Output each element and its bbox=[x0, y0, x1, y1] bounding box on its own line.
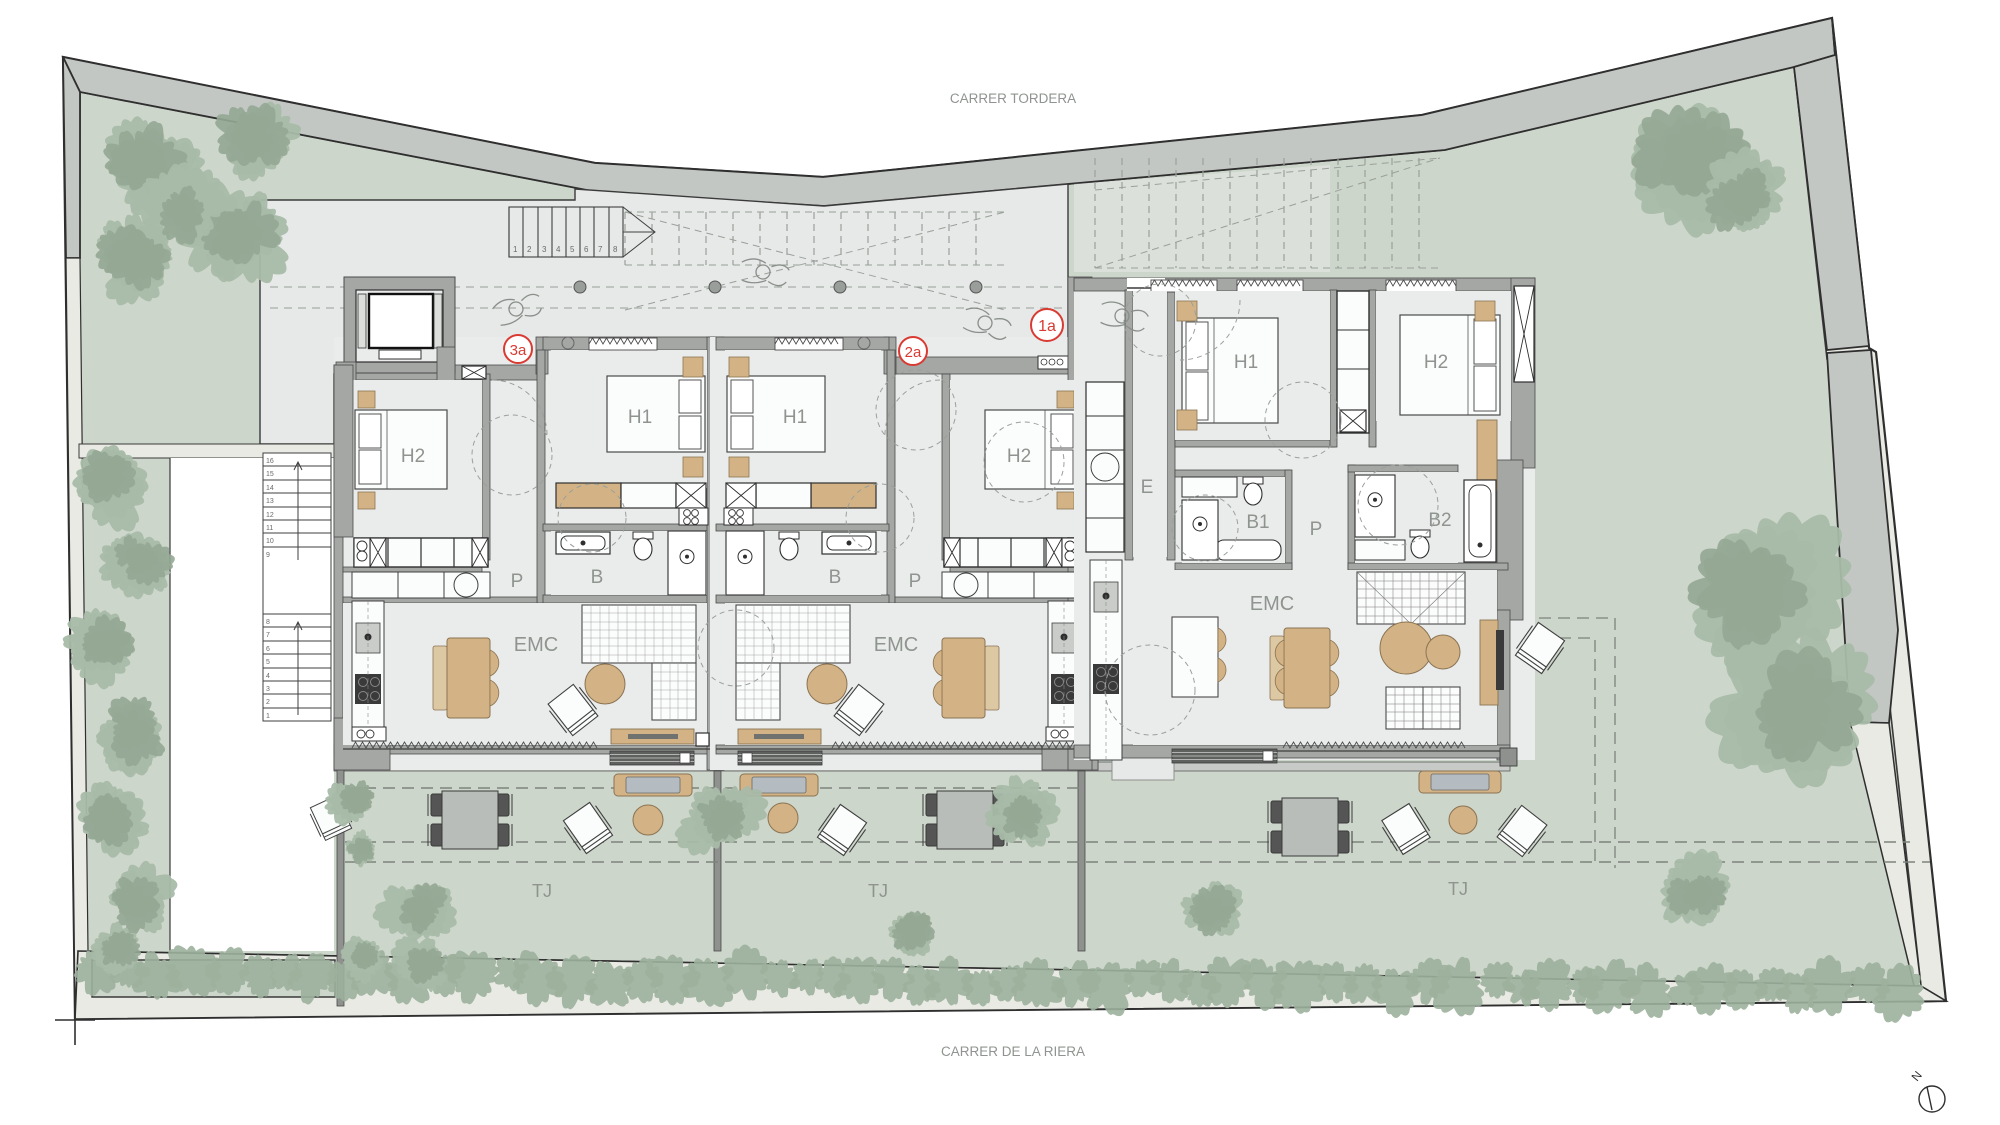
svg-text:6: 6 bbox=[266, 646, 270, 653]
svg-text:TJ: TJ bbox=[868, 881, 888, 901]
svg-text:4: 4 bbox=[556, 245, 561, 254]
svg-text:6: 6 bbox=[584, 245, 589, 254]
svg-text:EMC: EMC bbox=[514, 634, 558, 656]
svg-text:3: 3 bbox=[266, 686, 270, 693]
svg-text:EMC: EMC bbox=[874, 634, 918, 656]
svg-text:7: 7 bbox=[266, 632, 270, 639]
svg-text:1: 1 bbox=[513, 245, 518, 254]
svg-text:2: 2 bbox=[266, 699, 270, 706]
svg-text:16: 16 bbox=[266, 458, 274, 465]
svg-text:B2: B2 bbox=[1428, 510, 1451, 531]
svg-text:2: 2 bbox=[527, 245, 532, 254]
svg-text:H1: H1 bbox=[628, 407, 652, 428]
svg-text:H1: H1 bbox=[1234, 352, 1258, 373]
svg-text:TJ: TJ bbox=[532, 881, 552, 901]
svg-text:3: 3 bbox=[542, 245, 547, 254]
svg-text:5: 5 bbox=[570, 245, 575, 254]
svg-text:12: 12 bbox=[266, 512, 274, 519]
svg-text:H2: H2 bbox=[401, 446, 425, 467]
svg-text:B: B bbox=[591, 567, 604, 588]
svg-text:7: 7 bbox=[598, 245, 603, 254]
svg-text:11: 11 bbox=[266, 525, 273, 532]
svg-text:H2: H2 bbox=[1007, 446, 1031, 467]
svg-text:P: P bbox=[909, 571, 922, 592]
svg-text:H2: H2 bbox=[1424, 352, 1448, 373]
svg-text:EMC: EMC bbox=[1250, 593, 1294, 615]
svg-text:E: E bbox=[1141, 477, 1154, 498]
svg-text:TJ: TJ bbox=[1448, 879, 1468, 899]
svg-text:P: P bbox=[511, 571, 524, 592]
svg-text:15: 15 bbox=[266, 471, 274, 478]
svg-text:10: 10 bbox=[266, 538, 274, 545]
svg-text:4: 4 bbox=[266, 673, 270, 680]
svg-text:8: 8 bbox=[266, 619, 270, 626]
svg-text:P: P bbox=[1310, 519, 1323, 540]
svg-text:8: 8 bbox=[613, 245, 618, 254]
svg-text:3a: 3a bbox=[510, 342, 527, 359]
svg-text:CARRER DE LA RIERA: CARRER DE LA RIERA bbox=[941, 1044, 1085, 1059]
svg-text:13: 13 bbox=[266, 498, 274, 505]
svg-text:B: B bbox=[829, 567, 842, 588]
svg-text:CARRER TORDERA: CARRER TORDERA bbox=[950, 91, 1076, 106]
svg-text:5: 5 bbox=[266, 659, 270, 666]
svg-text:9: 9 bbox=[266, 552, 270, 559]
svg-text:1a: 1a bbox=[1038, 318, 1056, 335]
svg-text:14: 14 bbox=[266, 485, 274, 492]
svg-text:H1: H1 bbox=[783, 407, 807, 428]
svg-text:2a: 2a bbox=[905, 344, 922, 361]
svg-text:B1: B1 bbox=[1246, 512, 1269, 533]
svg-text:1: 1 bbox=[266, 713, 270, 720]
